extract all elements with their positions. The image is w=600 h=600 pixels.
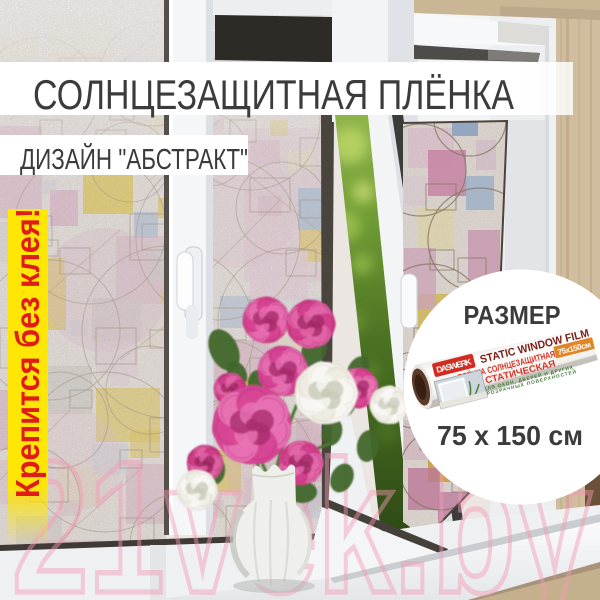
- svg-text:СОЛНЦЕЗАЩИТНАЯ ПЛЁНКА: СОЛНЦЕЗАЩИТНАЯ ПЛЁНКА: [33, 71, 514, 118]
- svg-text:РАЗМЕР: РАЗМЕР: [464, 300, 561, 330]
- svg-text:75 x 150 см: 75 x 150 см: [437, 420, 583, 451]
- svg-text:ДИЗАЙН "АБСТРАКТ": ДИЗАЙН "АБСТРАКТ": [20, 144, 248, 176]
- svg-text:Крепится без клея!: Крепится без клея!: [9, 208, 46, 498]
